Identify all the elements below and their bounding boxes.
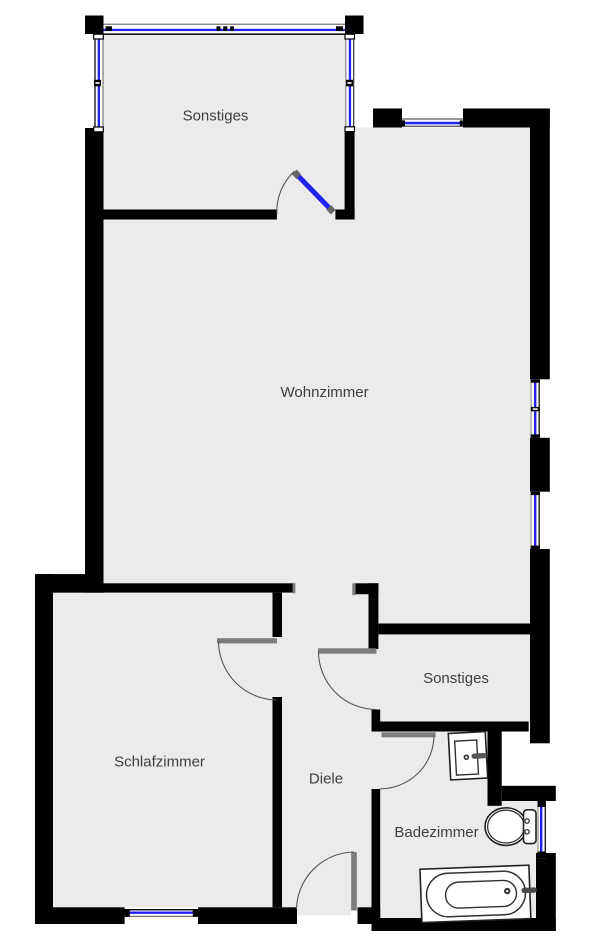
svg-text:Badezimmer: Badezimmer	[394, 824, 478, 841]
svg-text:Sonstiges: Sonstiges	[423, 670, 489, 687]
svg-text:Diele: Diele	[309, 771, 343, 788]
svg-text:Sonstiges: Sonstiges	[183, 108, 249, 125]
svg-text:Schlafzimmer: Schlafzimmer	[114, 754, 205, 771]
svg-text:Wohnzimmer: Wohnzimmer	[281, 384, 369, 401]
